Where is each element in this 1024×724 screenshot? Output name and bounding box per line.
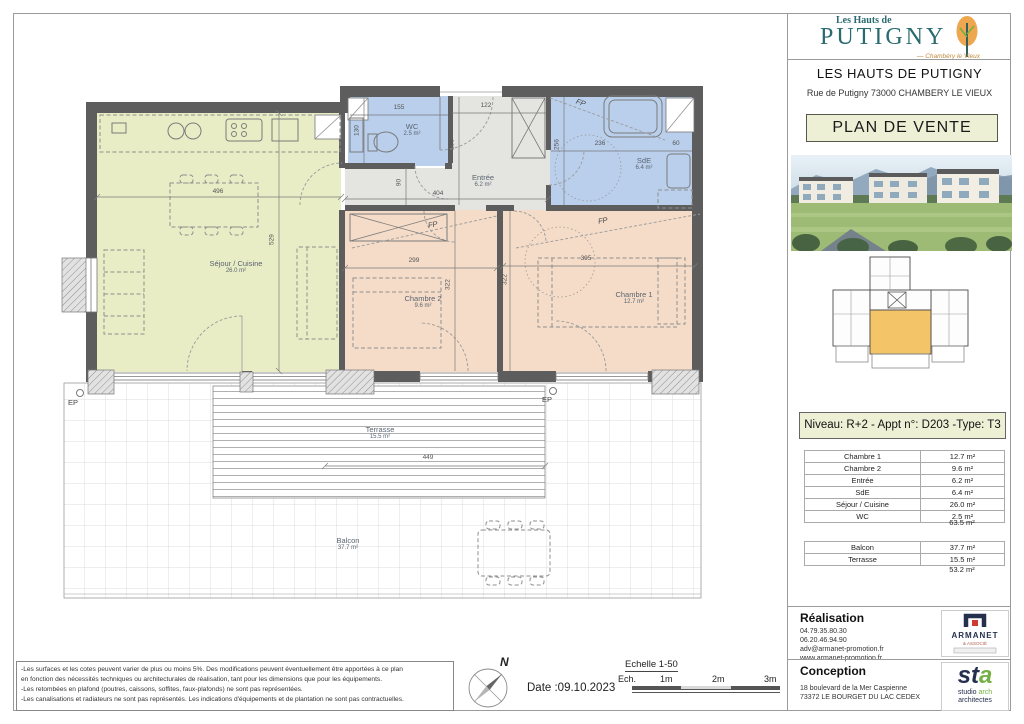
realisation-email: adv@armanet-promotion.fr (800, 645, 884, 654)
conception-address: 18 boulevard de la Mer Caspienne 73372 L… (800, 684, 920, 702)
sta-logo: sta studio arch architectes (941, 662, 1009, 711)
date-label: Date :09.10.2023 (527, 682, 615, 694)
key-plan (828, 254, 973, 382)
compass-icon (465, 666, 511, 712)
plan-sheet: Séjour / Cuisine26.0 m² WC2.5 m² Entrée6… (0, 0, 1024, 724)
project-photo (791, 155, 1012, 251)
armanet-logo: ARMANET & ASSOCIÉ (941, 610, 1009, 657)
outdoor-total: 53.2 m² (920, 565, 1004, 574)
conception-address1: 18 boulevard de la Mer Caspienne (800, 684, 920, 693)
disclaimer-box: -Les surfaces et les cotes peuvent varie… (16, 661, 454, 711)
realisation-title: Réalisation (800, 611, 864, 625)
panel-rule-1 (787, 59, 1011, 60)
realisation-phone1: 04.79.35.80.30 (800, 627, 884, 636)
panel-rule-3 (787, 659, 1011, 660)
project-address: Rue de Putigny 73000 CHAMBERY LE VIEUX (789, 88, 1010, 98)
doc-title: PLAN DE VENTE (806, 114, 998, 142)
room-areas-table: Chambre 112.7 m² Chambre 29.6 m² Entrée6… (804, 450, 1005, 523)
unit-banner: Niveau: R+2 - Appt n°: D203 -Type: T3 (799, 412, 1006, 439)
svg-text:& ASSOCIÉ: & ASSOCIÉ (963, 640, 987, 646)
svg-text:ARMANET: ARMANET (952, 631, 999, 640)
realisation-contacts: 04.79.35.80.30 06.20.46.94.90 adv@armane… (800, 627, 884, 663)
north-label: N (500, 655, 509, 669)
sta-logo-a: a (979, 662, 992, 689)
table-row: Balcon37.7 m² (805, 542, 1005, 554)
disclaimer-line: -Les canalisations et radiateurs ne sont… (21, 695, 449, 705)
scale-mark-3m: 3m (764, 674, 777, 684)
disclaimer-line: -Les retombées en plafond (poutres, cais… (21, 685, 449, 695)
outdoor-areas-table: Balcon37.7 m² Terrasse15.5 m² (804, 541, 1005, 566)
scale-prefix: Ech. (618, 674, 636, 684)
table-row: Terrasse15.5 m² (805, 554, 1005, 566)
project-title: LES HAUTS DE PUTIGNY (789, 66, 1010, 81)
table-row: Séjour / Cuisine26.0 m² (805, 499, 1005, 511)
brand-logo-name: PUTIGNY (820, 24, 946, 51)
highlighted-unit (870, 310, 931, 354)
realisation-phone2: 06.20.46.94.90 (800, 636, 884, 645)
sta-logo-line1a: studio (958, 689, 979, 696)
sta-logo-st: st (958, 662, 979, 689)
scale-mark-1m: 1m (660, 674, 673, 684)
table-row: Entrée6.2 m² (805, 475, 1005, 487)
scale-bar (632, 686, 780, 694)
disclaimer-line: en fonction des nécessités techniques ou… (21, 675, 449, 685)
sta-logo-line1b: arch (979, 689, 993, 696)
table-row: Chambre 112.7 m² (805, 451, 1005, 463)
table-row: SdE6.4 m² (805, 487, 1005, 499)
brand-logo: Les Hauts de PUTIGNY — Chambéry le Vieux (800, 15, 1000, 59)
panel-rule-2 (787, 606, 1011, 607)
sta-logo-line2: architectes (942, 697, 1008, 705)
rooms-total: 63.5 m² (920, 518, 1004, 527)
scale-mark-2m: 2m (712, 674, 725, 684)
scale-title: Echelle 1-50 (625, 659, 678, 672)
conception-address2: 73372 LE BOURGET DU LAC CEDEX (800, 693, 920, 702)
table-row: Chambre 29.6 m² (805, 463, 1005, 475)
disclaimer-line: -Les surfaces et les cotes peuvent varie… (21, 665, 449, 675)
conception-title: Conception (800, 664, 866, 678)
